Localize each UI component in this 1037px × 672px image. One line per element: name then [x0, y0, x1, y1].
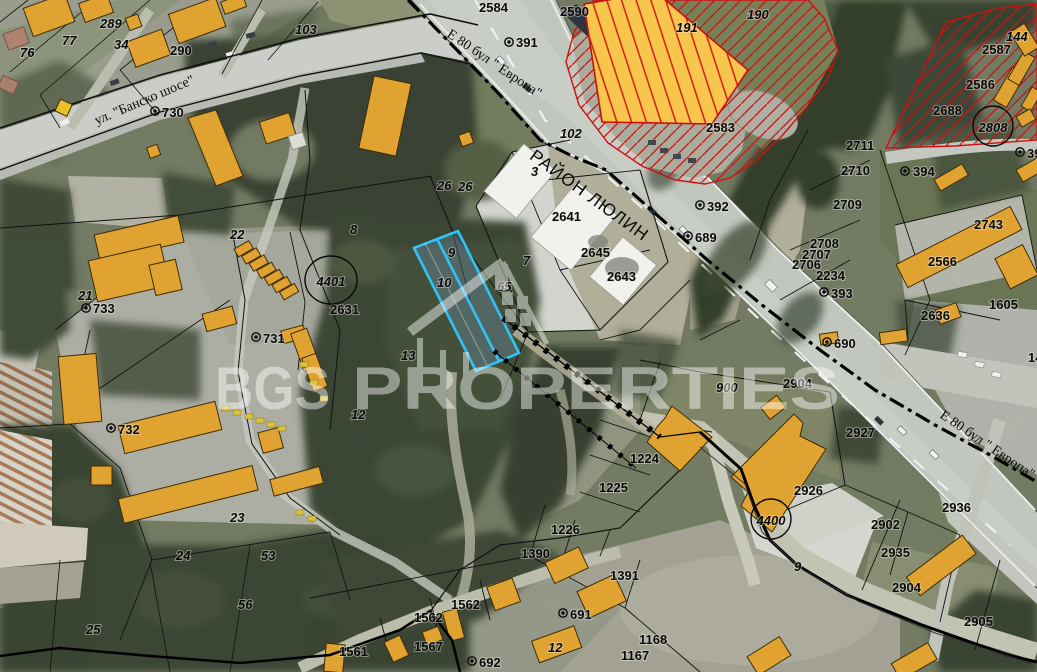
svg-text:2643: 2643 [607, 269, 636, 284]
svg-text:1567: 1567 [414, 639, 443, 654]
svg-text:2590: 2590 [560, 4, 589, 19]
svg-text:4401: 4401 [316, 274, 346, 289]
svg-text:2710: 2710 [841, 163, 870, 178]
svg-text:2711: 2711 [846, 138, 874, 153]
svg-text:2583: 2583 [706, 120, 735, 135]
svg-text:7: 7 [523, 253, 531, 268]
svg-text:21: 21 [77, 288, 92, 303]
svg-text:148: 148 [1028, 350, 1037, 365]
svg-text:3: 3 [531, 164, 539, 179]
svg-text:732: 732 [118, 422, 140, 437]
svg-text:733: 733 [93, 301, 115, 316]
svg-text:2587: 2587 [982, 42, 1011, 57]
svg-text:290: 290 [170, 43, 192, 58]
svg-text:34: 34 [114, 37, 129, 52]
svg-text:1605: 1605 [989, 297, 1018, 312]
svg-text:77: 77 [62, 33, 77, 48]
svg-text:689: 689 [695, 230, 717, 245]
svg-text:25: 25 [85, 622, 101, 637]
svg-text:56: 56 [238, 597, 253, 612]
svg-text:4400: 4400 [756, 513, 787, 528]
svg-text:39: 39 [1027, 146, 1037, 161]
svg-text:1390: 1390 [521, 546, 550, 561]
svg-text:12: 12 [548, 640, 563, 655]
svg-text:2927: 2927 [846, 425, 875, 440]
svg-text:22: 22 [229, 227, 245, 242]
svg-text:2902: 2902 [871, 517, 900, 532]
svg-text:1561: 1561 [339, 644, 368, 659]
svg-text:2234: 2234 [816, 268, 846, 283]
svg-text:1167: 1167 [621, 648, 649, 663]
svg-text:9: 9 [448, 245, 456, 260]
svg-text:1225: 1225 [599, 480, 628, 495]
svg-text:BGS: BGS [215, 355, 330, 422]
svg-text:PROPERTIES: PROPERTIES [352, 355, 840, 422]
svg-text:2641: 2641 [552, 209, 581, 224]
svg-text:24: 24 [175, 548, 191, 563]
svg-text:1562: 1562 [414, 610, 443, 625]
svg-text:2645: 2645 [581, 245, 610, 260]
svg-text:53: 53 [261, 548, 276, 563]
svg-text:9: 9 [794, 559, 802, 574]
svg-text:289: 289 [99, 16, 122, 31]
svg-text:76: 76 [20, 45, 35, 60]
svg-text:144: 144 [1006, 29, 1028, 44]
svg-text:690: 690 [834, 336, 856, 351]
svg-text:1224: 1224 [630, 451, 660, 466]
svg-text:191: 191 [676, 20, 698, 35]
svg-text:2935: 2935 [881, 545, 910, 560]
svg-text:2709: 2709 [833, 197, 862, 212]
svg-text:26: 26 [457, 179, 473, 194]
svg-text:2636: 2636 [921, 308, 950, 323]
svg-text:2904: 2904 [892, 580, 922, 595]
svg-text:190: 190 [747, 7, 769, 22]
svg-text:392: 392 [707, 199, 729, 214]
svg-text:1562: 1562 [451, 597, 480, 612]
svg-text:23: 23 [229, 510, 245, 525]
svg-text:731: 731 [263, 331, 285, 346]
svg-text:2936: 2936 [942, 500, 971, 515]
svg-text:103: 103 [295, 22, 317, 37]
svg-text:2808: 2808 [978, 120, 1009, 135]
svg-text:2586: 2586 [966, 77, 995, 92]
svg-text:691: 691 [570, 607, 592, 622]
svg-text:1391: 1391 [610, 568, 639, 583]
svg-text:2743: 2743 [974, 217, 1003, 232]
svg-text:8: 8 [350, 222, 358, 237]
svg-text:692: 692 [479, 655, 501, 670]
svg-text:2688: 2688 [933, 103, 962, 118]
svg-text:2905: 2905 [964, 614, 993, 629]
svg-text:102: 102 [560, 126, 582, 141]
svg-text:2926: 2926 [794, 483, 823, 498]
svg-text:394: 394 [913, 164, 935, 179]
svg-text:391: 391 [516, 35, 538, 50]
svg-text:730: 730 [162, 105, 184, 120]
svg-text:26: 26 [436, 178, 452, 193]
svg-text:10: 10 [437, 275, 452, 290]
svg-text:1168: 1168 [639, 632, 667, 647]
svg-text:393: 393 [831, 286, 853, 301]
svg-text:2566: 2566 [928, 254, 957, 269]
svg-text:2584: 2584 [479, 0, 509, 15]
svg-text:1226: 1226 [551, 522, 580, 537]
